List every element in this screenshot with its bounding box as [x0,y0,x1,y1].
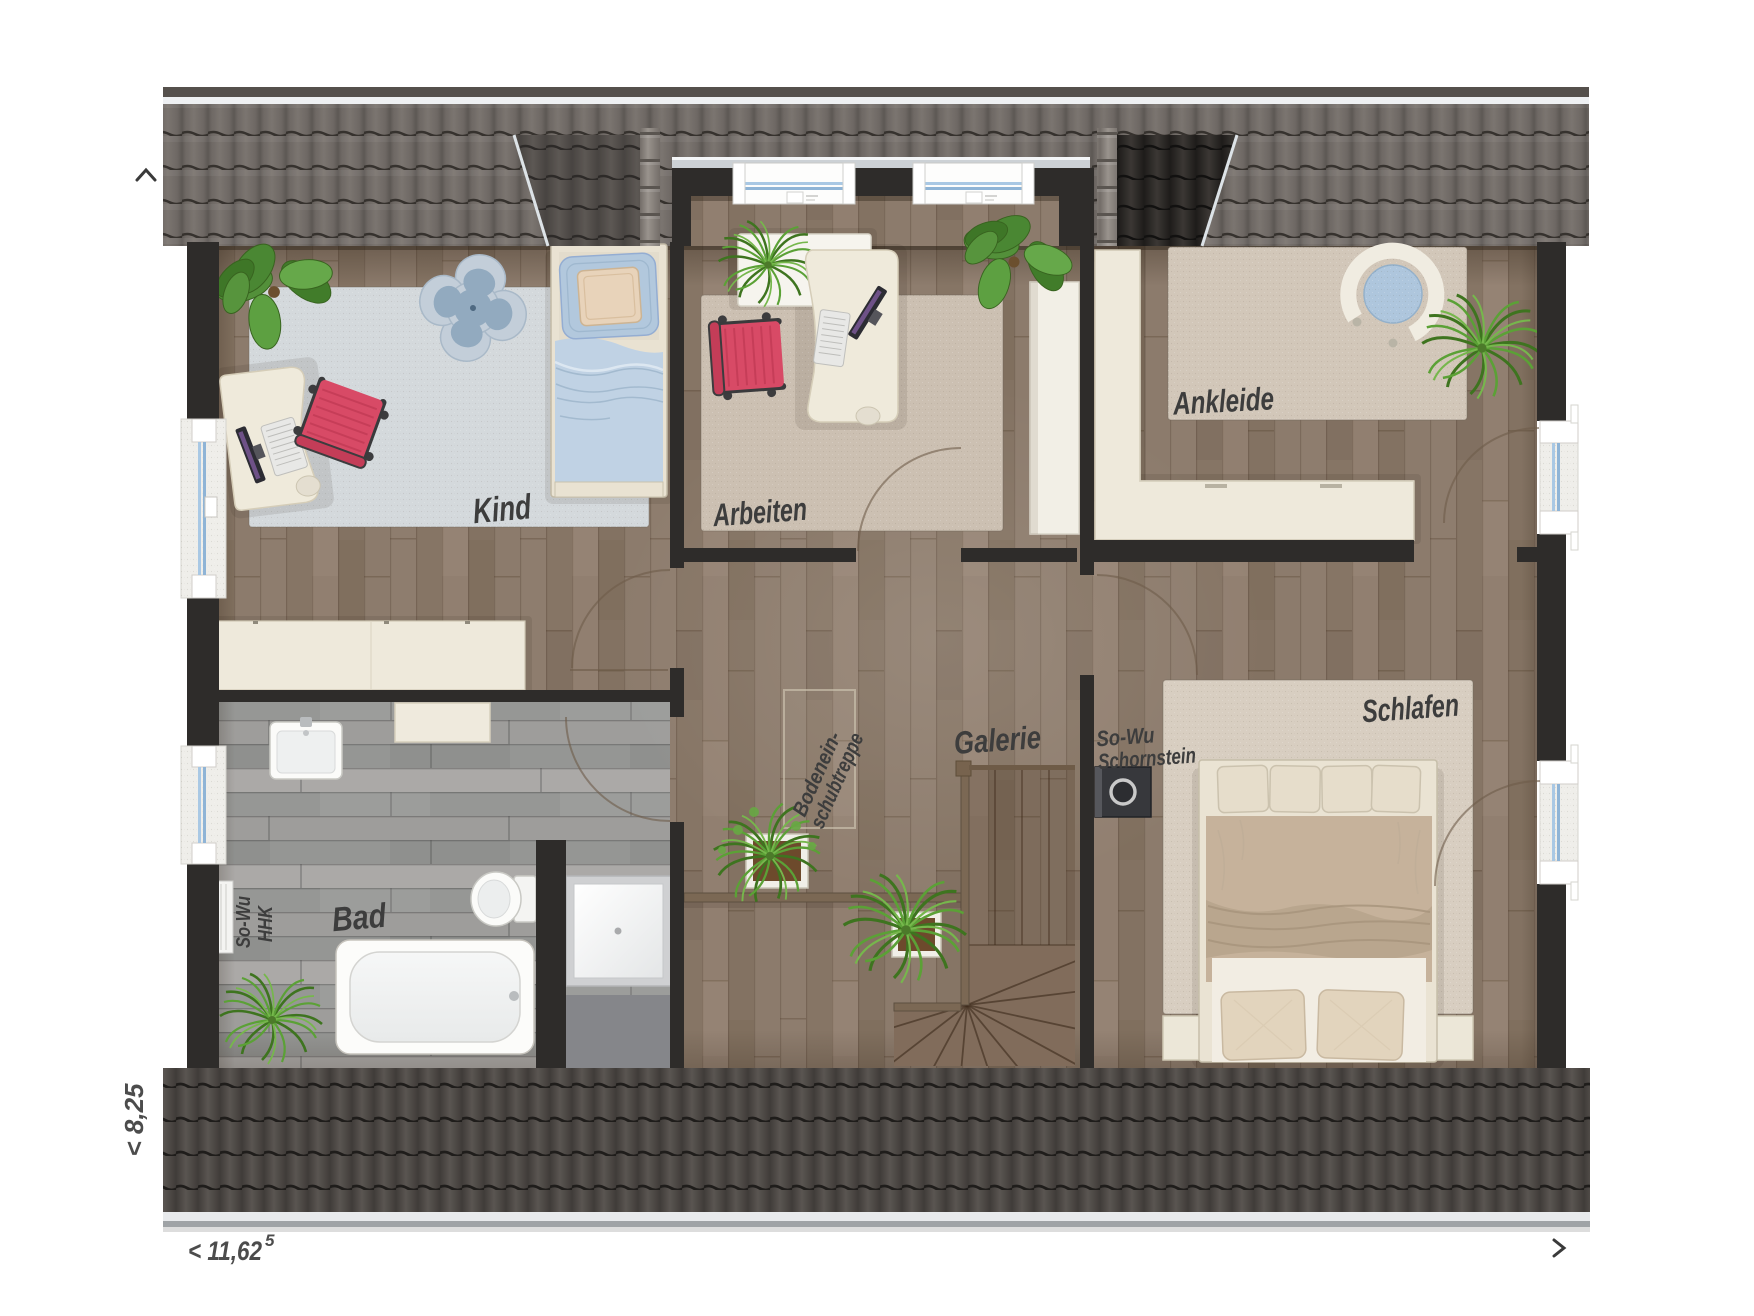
svg-text:Kind: Kind [471,487,533,531]
svg-text:Galerie: Galerie [953,719,1042,761]
svg-text:So-Wu: So-Wu [233,896,255,948]
svg-text:< 11,62: < 11,62 [188,1236,262,1266]
svg-text:Ankleide: Ankleide [1171,380,1275,421]
svg-text:< 8,25: < 8,25 [119,1083,149,1157]
svg-text:Arbeiten: Arbeiten [711,491,808,534]
svg-text:5: 5 [265,1231,275,1250]
svg-text:Schlafen: Schlafen [1361,687,1460,730]
svg-text:HHK: HHK [255,905,277,942]
svg-text:Bad: Bad [330,897,388,940]
